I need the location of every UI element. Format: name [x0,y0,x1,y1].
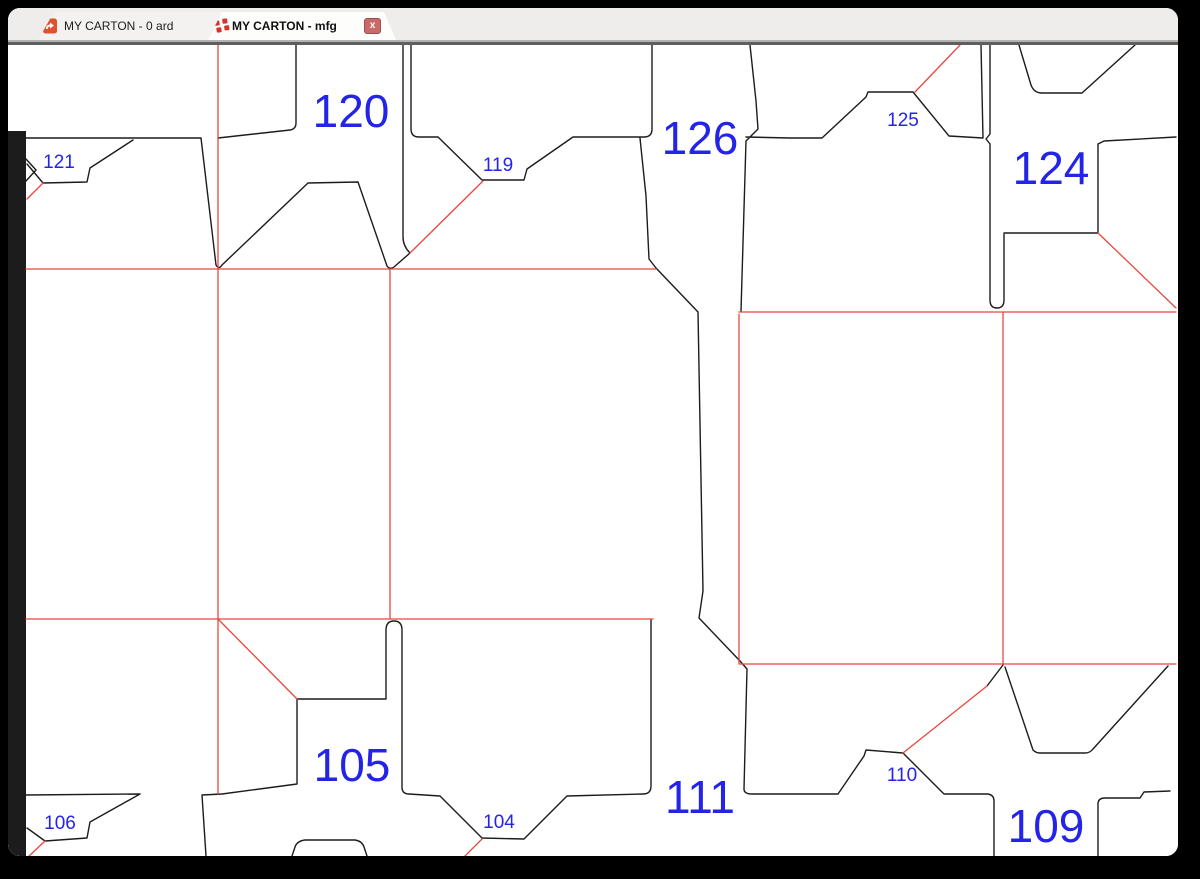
sheet-left-edge [8,131,26,856]
panel-label-110: 110 [887,765,917,786]
manufacturing-layout-drawing: 120126124105111109121119125106104110 [8,45,1178,856]
panel-label-124: 124 [1013,142,1090,194]
panel-label-119: 119 [483,155,513,176]
drawing-canvas[interactable]: 120126124105111109121119125106104110 [8,45,1178,856]
application-window: MY CARTON - 0 ard MY CARTON - mfg x [8,8,1178,856]
document-tab-bar: MY CARTON - 0 ard MY CARTON - mfg x [8,8,1178,40]
panel-label-125: 125 [887,110,919,131]
desktop-background: MY CARTON - 0 ard MY CARTON - mfg x [0,0,1200,879]
tab-label: MY CARTON - mfg [232,19,337,33]
panel-label-109: 109 [1008,800,1085,852]
panel-label-121: 121 [43,152,75,173]
panel-label-106: 106 [44,813,76,834]
tab-close-button[interactable]: x [364,18,381,34]
panel-label-126: 126 [662,112,739,164]
panel-label-105: 105 [314,739,391,791]
panel-number-labels: 120126124105111109121119125106104110 [43,85,1089,852]
tab-label: MY CARTON - 0 ard [64,19,173,33]
panel-label-104: 104 [483,812,515,833]
tab-my-carton-mfg[interactable]: MY CARTON - mfg x [200,12,428,40]
panel-label-120: 120 [313,85,390,137]
crease-lines [26,45,1176,856]
panel-label-111: 111 [665,771,735,823]
ard-document-icon [42,18,58,34]
